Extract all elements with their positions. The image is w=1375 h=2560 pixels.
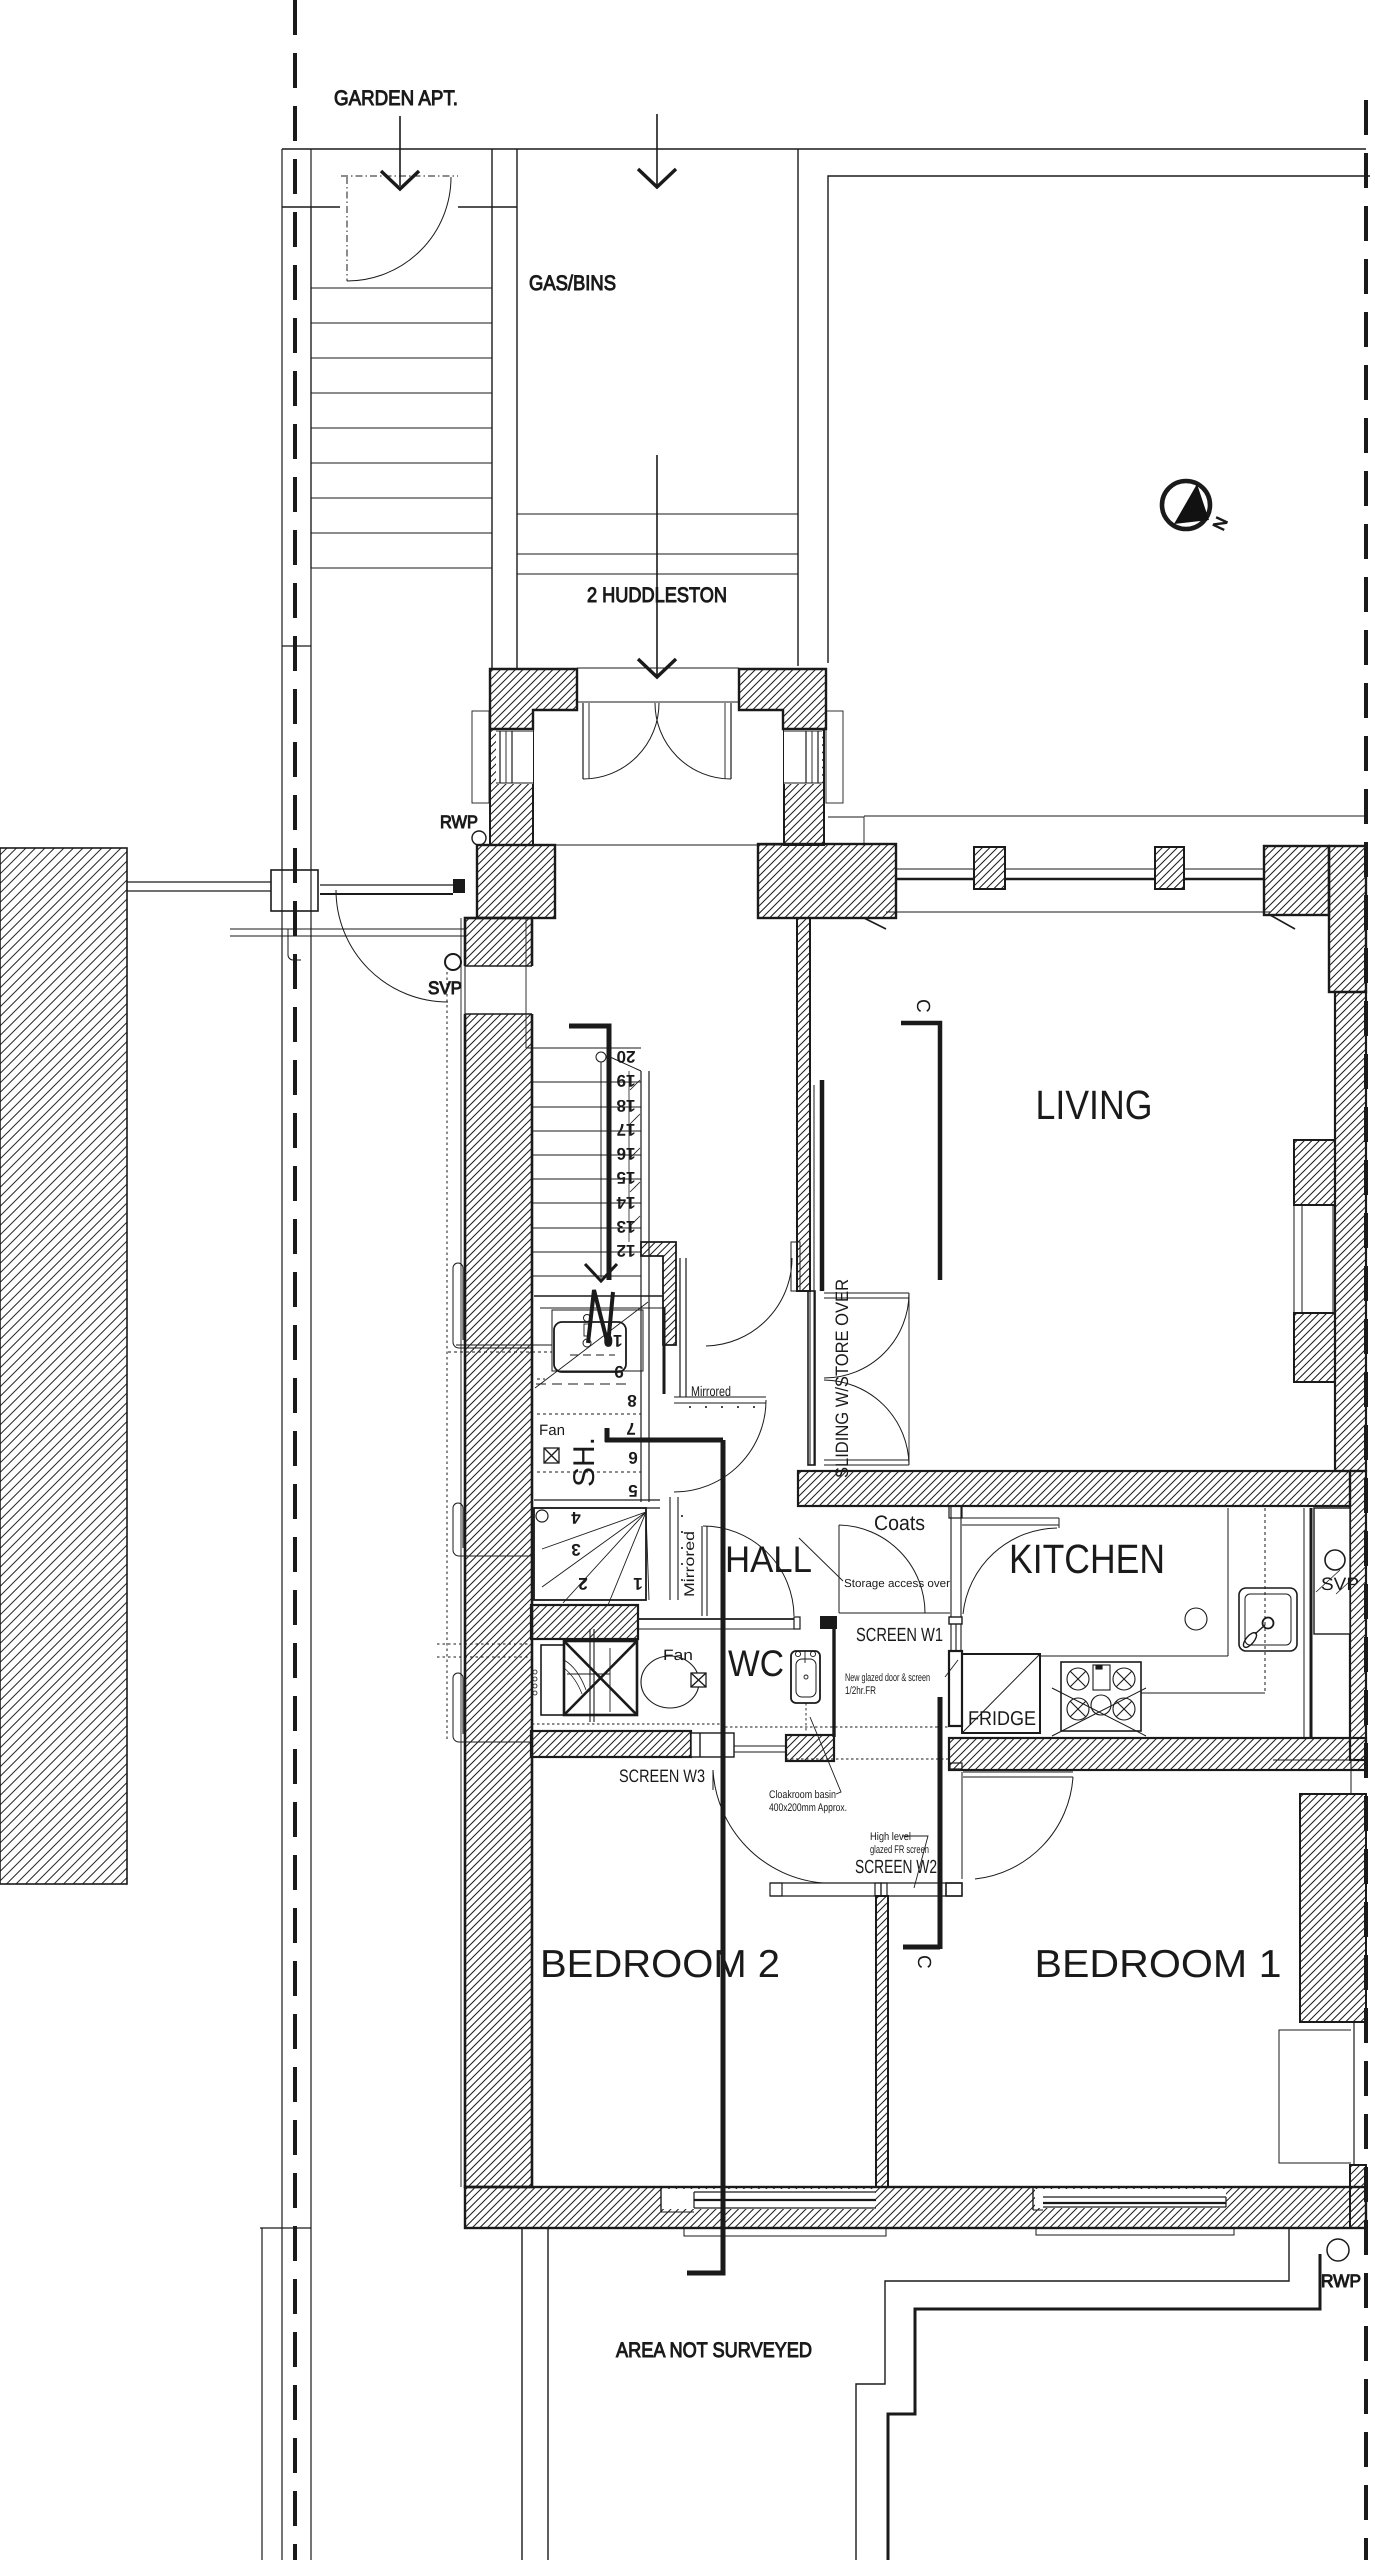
- svg-text:LIVING: LIVING: [1036, 1082, 1153, 1128]
- svg-text:SCREEN W1: SCREEN W1: [856, 1625, 943, 1646]
- svg-text:glazed FR screen: glazed FR screen: [870, 1844, 929, 1856]
- svg-text:RWP: RWP: [1321, 2271, 1361, 2291]
- svg-text:C: C: [913, 1955, 934, 1969]
- svg-text:1: 1: [633, 1574, 642, 1593]
- svg-text:3: 3: [571, 1540, 580, 1559]
- svg-text:RWP: RWP: [440, 812, 478, 832]
- svg-text:Fan: Fan: [539, 1422, 565, 1439]
- svg-text:GAS/BINS: GAS/BINS: [529, 272, 616, 295]
- svg-text:High level: High level: [870, 1831, 911, 1843]
- svg-text:SVP: SVP: [1321, 1574, 1359, 1594]
- svg-text:400x200mm Approx.: 400x200mm Approx.: [769, 1802, 847, 1814]
- svg-text:New glazed door & screen: New glazed door & screen: [845, 1672, 930, 1684]
- svg-text:6: 6: [628, 1448, 637, 1467]
- svg-text:GARDEN APT.: GARDEN APT.: [334, 87, 458, 110]
- svg-text:8: 8: [627, 1391, 636, 1410]
- svg-text:20: 20: [617, 1047, 636, 1066]
- svg-text:18: 18: [617, 1096, 636, 1115]
- svg-text:Coats: Coats: [874, 1512, 925, 1535]
- svg-text:9: 9: [614, 1362, 623, 1381]
- svg-text:HALL: HALL: [725, 1539, 812, 1580]
- svg-text:Fan: Fan: [663, 1647, 693, 1664]
- svg-text:BEDROOM 2: BEDROOM 2: [540, 1943, 780, 1986]
- svg-text:Cloakroom basin: Cloakroom basin: [769, 1789, 836, 1801]
- svg-text:1/2hr.FR: 1/2hr.FR: [845, 1685, 876, 1697]
- svg-text:SH.: SH.: [568, 1437, 601, 1487]
- svg-text:SCREEN W2: SCREEN W2: [855, 1857, 937, 1878]
- svg-text:10: 10: [604, 1331, 623, 1350]
- svg-text:Mirrored: Mirrored: [691, 1383, 731, 1399]
- svg-text:WC: WC: [728, 1643, 784, 1684]
- svg-text:2: 2: [578, 1574, 587, 1593]
- svg-text:13: 13: [617, 1217, 636, 1236]
- svg-text:SVP: SVP: [428, 978, 462, 998]
- svg-text:C: C: [912, 999, 933, 1013]
- svg-text:5: 5: [628, 1481, 637, 1500]
- svg-text:4: 4: [571, 1508, 581, 1527]
- svg-text:15: 15: [617, 1168, 636, 1187]
- svg-text:Mirrored: Mirrored: [681, 1531, 697, 1597]
- svg-text:FRIDGE: FRIDGE: [968, 1708, 1036, 1730]
- svg-text:16: 16: [617, 1144, 636, 1163]
- svg-text:7: 7: [626, 1419, 635, 1438]
- svg-text:14: 14: [616, 1193, 635, 1212]
- svg-text:SLIDING W/STORE OVER: SLIDING W/STORE OVER: [832, 1279, 852, 1478]
- svg-text:KITCHEN: KITCHEN: [1009, 1536, 1165, 1582]
- svg-text:17: 17: [617, 1120, 636, 1139]
- svg-text:12: 12: [617, 1241, 636, 1260]
- svg-text:AREA NOT SURVEYED: AREA NOT SURVEYED: [616, 2339, 812, 2362]
- svg-text:19: 19: [617, 1071, 636, 1090]
- svg-text:SCREEN W3: SCREEN W3: [619, 1766, 705, 1786]
- svg-text:Storage access over: Storage access over: [844, 1578, 950, 1590]
- svg-text:BEDROOM 1: BEDROOM 1: [1035, 1943, 1282, 1986]
